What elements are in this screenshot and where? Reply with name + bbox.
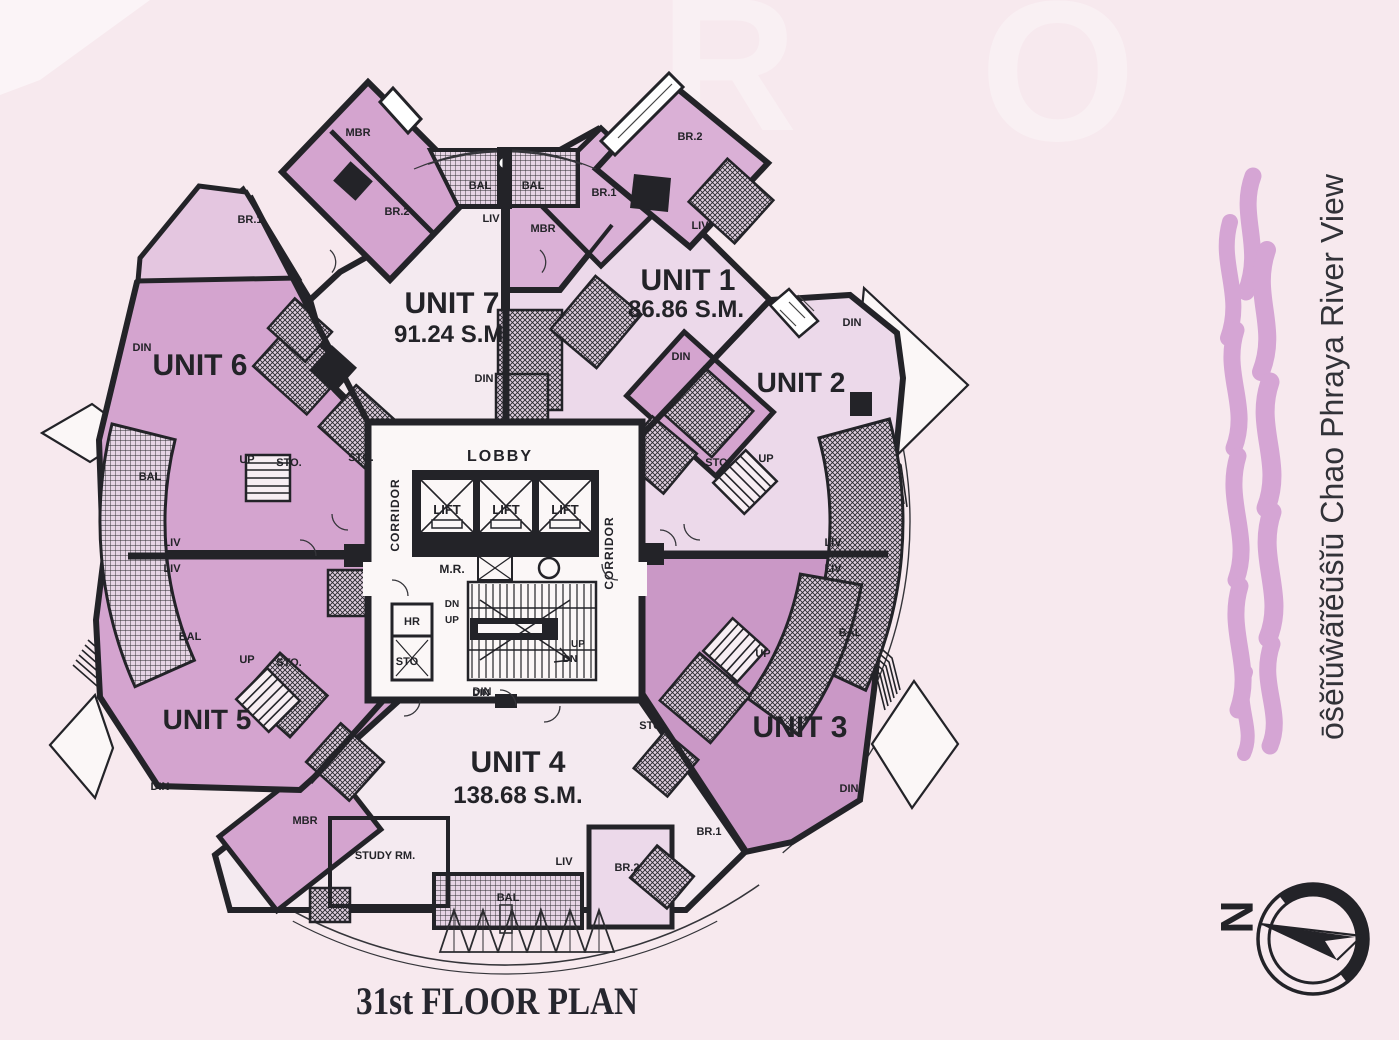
svg-text:M.R.: M.R.	[439, 562, 464, 576]
svg-text:UP: UP	[239, 454, 254, 466]
svg-text:UP: UP	[445, 615, 459, 626]
svg-text:ōŝĕĩŭŵãĩĕũŝĭū Chao Phraya Riv: ōŝĕĩŭŵãĩĕũŝĭū Chao Phraya River View	[1314, 173, 1350, 740]
svg-text:CORRIDOR: CORRIDOR	[602, 516, 616, 589]
svg-text:UP: UP	[755, 648, 770, 660]
svg-text:O: O	[980, 0, 1136, 183]
svg-text:BR.2: BR.2	[614, 862, 639, 874]
svg-text:LIFT: LIFT	[492, 502, 519, 517]
svg-text:UNIT 4: UNIT 4	[470, 746, 565, 779]
svg-text:LIFT: LIFT	[551, 502, 578, 517]
svg-text:138.68 S.M.: 138.68 S.M.	[453, 782, 582, 809]
svg-text:UNIT 5: UNIT 5	[163, 704, 252, 735]
svg-text:UNIT 3: UNIT 3	[752, 711, 847, 744]
svg-text:MBR: MBR	[530, 223, 555, 235]
svg-text:BAL: BAL	[839, 627, 862, 639]
svg-text:LIV: LIV	[691, 220, 709, 232]
svg-text:DIN: DIN	[133, 342, 152, 354]
svg-text:LIV: LIV	[824, 537, 842, 549]
svg-text:DIN: DIN	[151, 781, 170, 793]
svg-text:UNIT 7: UNIT 7	[404, 287, 499, 320]
svg-text:LOBBY: LOBBY	[467, 448, 533, 465]
svg-text:STO.: STO.	[705, 457, 730, 469]
svg-text:BAL: BAL	[497, 892, 520, 904]
svg-text:BR.2: BR.2	[384, 206, 409, 218]
svg-text:BR.1: BR.1	[591, 187, 616, 199]
svg-text:STO.: STO.	[276, 457, 301, 469]
svg-text:BR.1: BR.1	[696, 826, 721, 838]
svg-text:31st FLOOR PLAN: 31st FLOOR PLAN	[356, 980, 638, 1023]
svg-text:BAL: BAL	[179, 631, 202, 643]
svg-text:DN: DN	[563, 654, 577, 665]
svg-text:BR.2: BR.2	[677, 131, 702, 143]
svg-text:HR: HR	[404, 616, 420, 628]
svg-text:BAL: BAL	[522, 180, 545, 192]
svg-text:LIV: LIV	[555, 856, 573, 868]
svg-text:STO.: STO.	[348, 452, 373, 464]
svg-text:LIFT: LIFT	[433, 502, 460, 517]
svg-text:UNIT 2: UNIT 2	[757, 367, 846, 398]
svg-text:STO.: STO.	[276, 657, 301, 669]
svg-text:MBR: MBR	[345, 127, 370, 139]
svg-text:91.24 S.M.: 91.24 S.M.	[394, 321, 510, 348]
svg-text:DN: DN	[445, 599, 459, 610]
svg-text:MBR: MBR	[292, 815, 317, 827]
svg-text:UP: UP	[758, 453, 773, 465]
svg-text:UP: UP	[571, 639, 585, 650]
svg-text:LIV: LIV	[824, 563, 842, 575]
svg-text:STO: STO	[396, 656, 419, 668]
svg-text:BAL: BAL	[139, 471, 162, 483]
svg-text:LIV: LIV	[163, 537, 181, 549]
svg-text:CORRIDOR: CORRIDOR	[388, 478, 402, 551]
svg-text:LIV: LIV	[163, 563, 181, 575]
svg-text:BAL: BAL	[469, 180, 492, 192]
svg-text:UNIT 6: UNIT 6	[152, 349, 247, 382]
svg-text:UP: UP	[239, 654, 254, 666]
svg-text:N: N	[1211, 900, 1263, 933]
svg-text:LIV: LIV	[482, 213, 500, 225]
svg-text:STO.: STO.	[639, 720, 664, 732]
svg-text:DIN: DIN	[672, 351, 691, 363]
svg-text:BR.1: BR.1	[237, 214, 262, 226]
svg-text:STUDY RM.: STUDY RM.	[355, 850, 415, 862]
svg-text:DIN: DIN	[473, 686, 492, 698]
svg-text:DIN: DIN	[475, 373, 494, 385]
svg-text:86.86 S.M.: 86.86 S.M.	[628, 296, 744, 323]
svg-text:UNIT 1: UNIT 1	[640, 264, 735, 297]
svg-text:DIN: DIN	[840, 783, 859, 795]
svg-text:DIN: DIN	[843, 317, 862, 329]
